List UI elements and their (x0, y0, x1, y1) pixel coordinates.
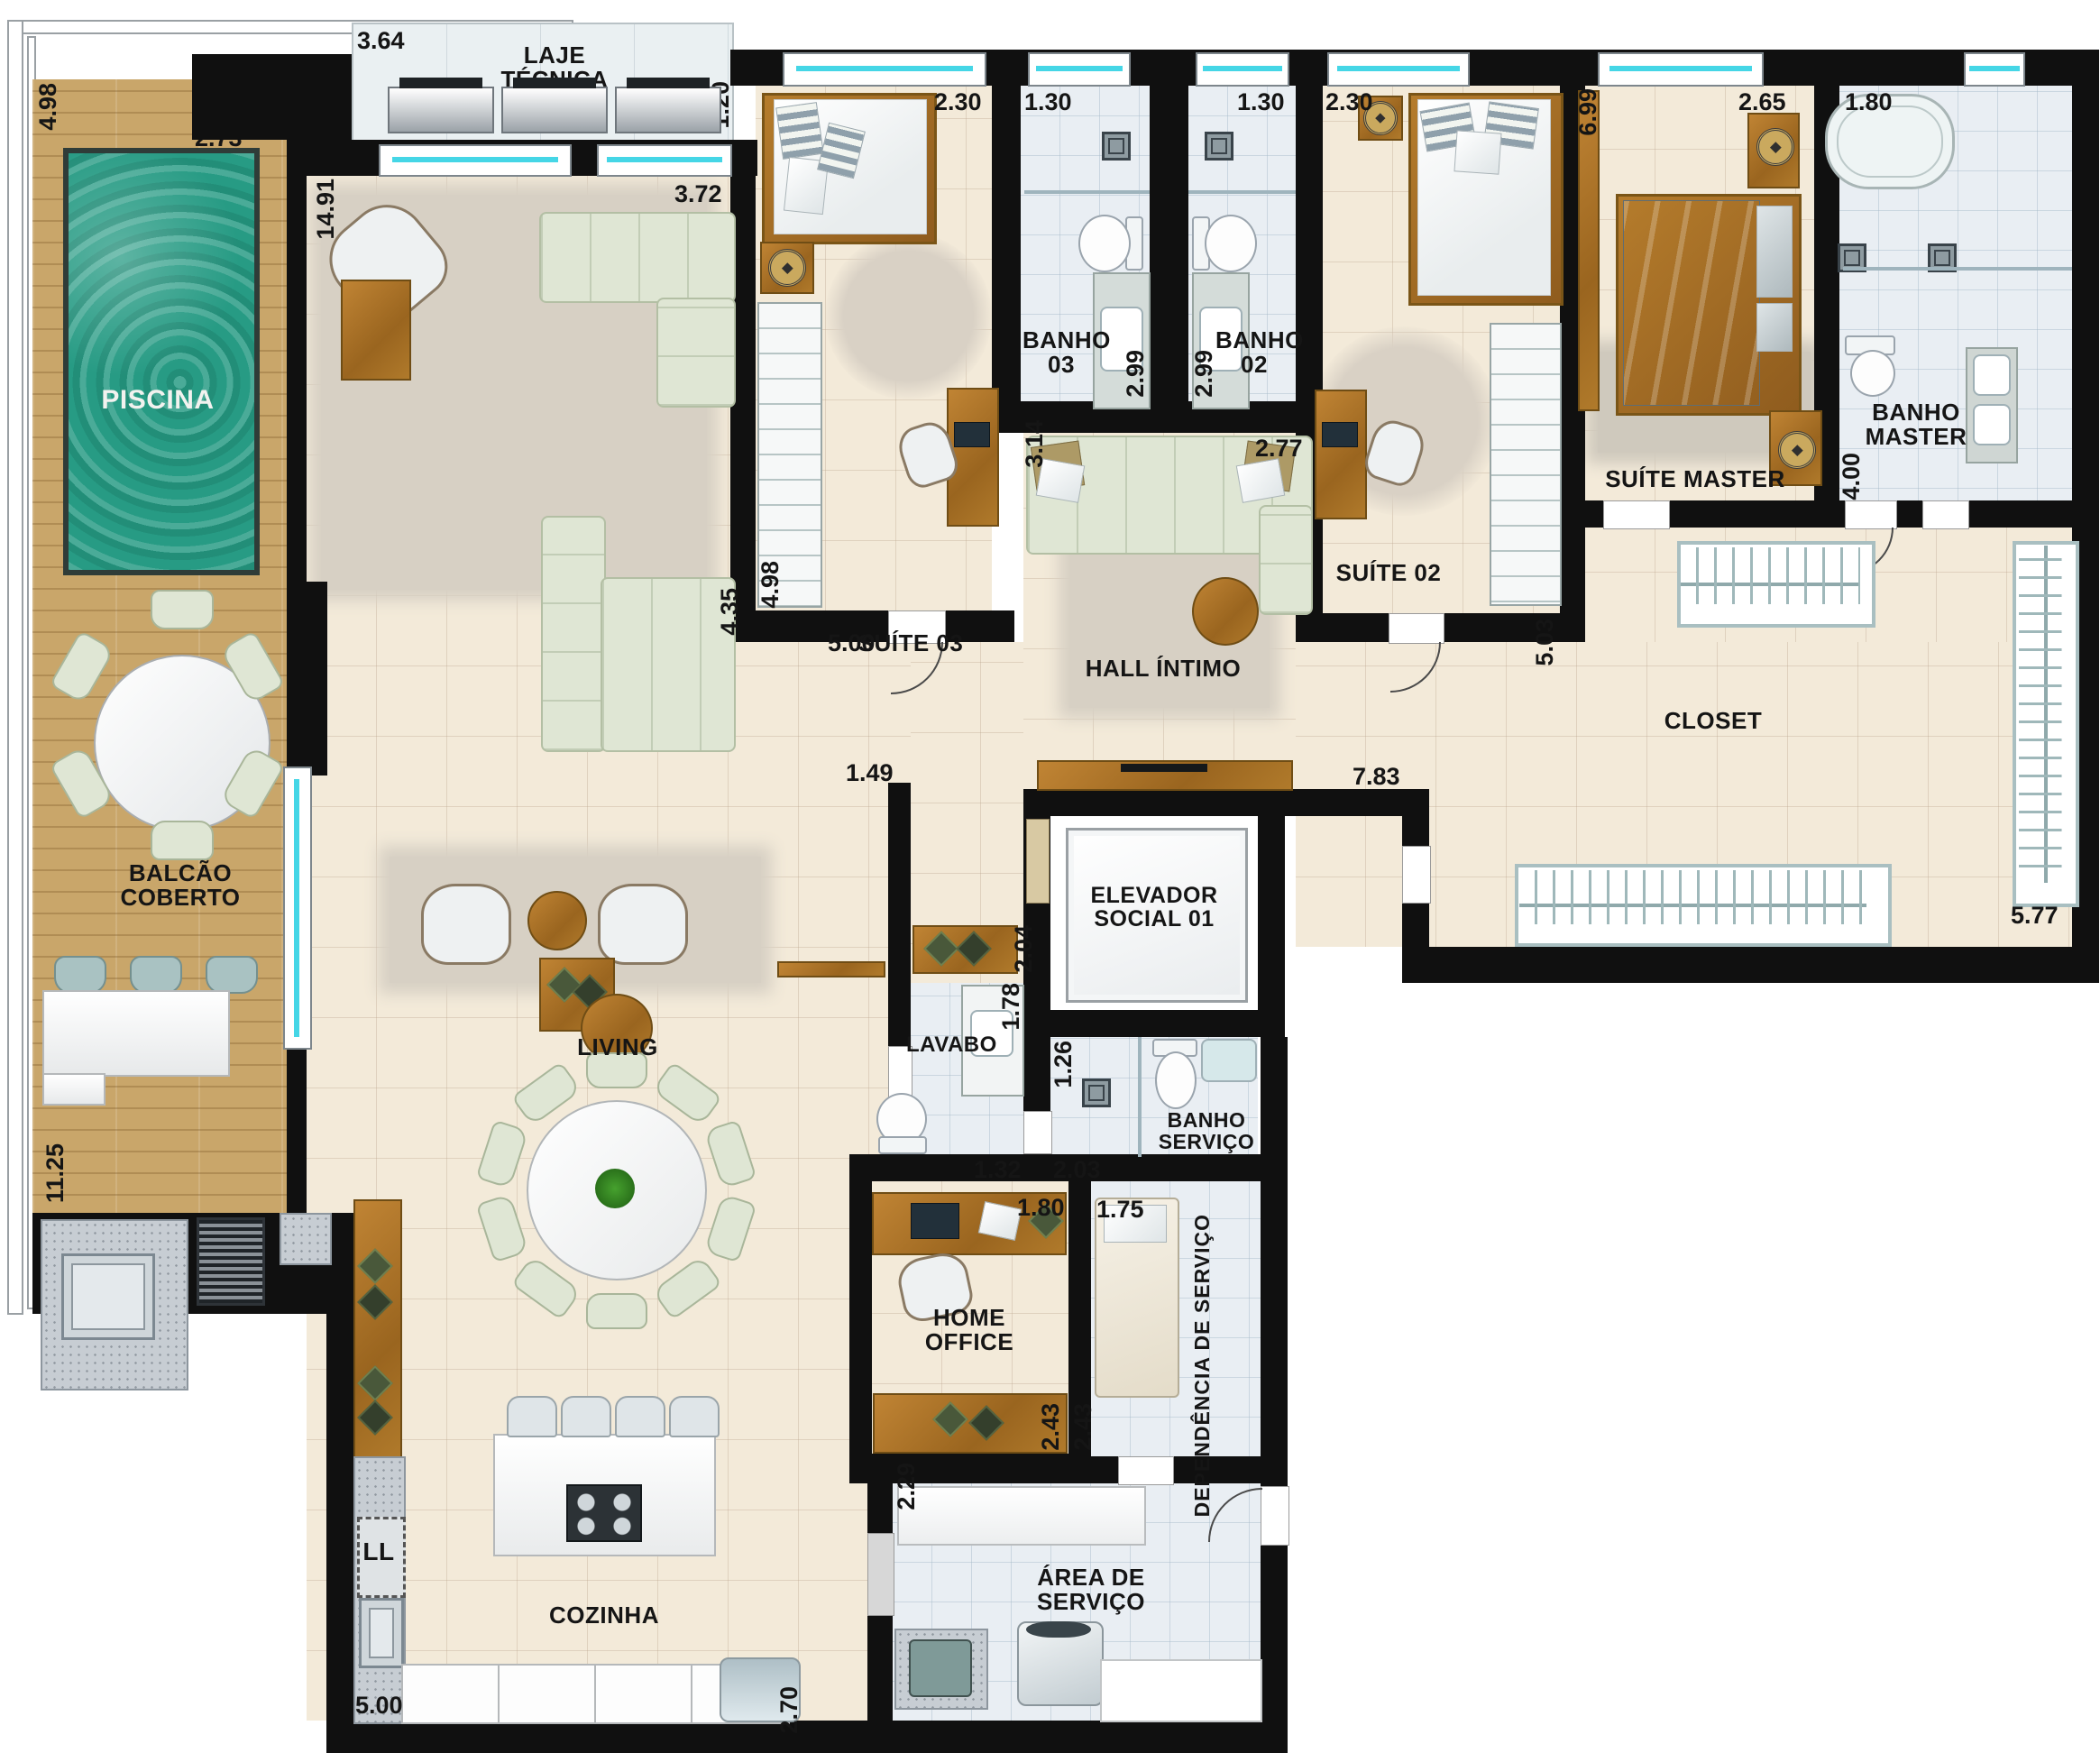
grill (197, 1217, 265, 1306)
ac-condenser (501, 87, 608, 133)
wall (1050, 1010, 1285, 1037)
dim-s02-len: 5.03 (1533, 619, 1557, 666)
kitchen-stool (615, 1396, 665, 1437)
living-sofa-upper (539, 212, 736, 303)
kitchen-stool (669, 1396, 720, 1437)
wall (1068, 1456, 1288, 1483)
closet-rack-top (1677, 541, 1875, 628)
dim-kitchen-d: 2.70 (777, 1686, 802, 1734)
dim-closet-top: 7.83 (1353, 765, 1400, 789)
suite02-label: SUÍTE 02 (1334, 561, 1443, 585)
wall (1258, 816, 1285, 1037)
banho-master-door (1845, 500, 1897, 529)
balcony-glass-door (283, 766, 312, 1050)
dining-chair (586, 1293, 647, 1329)
balcao-chair (151, 590, 214, 629)
toilet-tank (878, 1136, 927, 1154)
lamp-icon (1756, 128, 1794, 166)
shower-glass (1188, 190, 1296, 194)
shower-icon (1102, 132, 1131, 161)
wall (1150, 86, 1188, 433)
bar-counter-return (42, 1073, 105, 1106)
outdoor-counter-2 (280, 1213, 332, 1265)
floor-plan: PISCINA 4.98 2.73 BALCÃO COBERTO 11.25 L… (0, 0, 2100, 1753)
bar-stool (54, 956, 106, 994)
dim-dep-w2: 2.43 (1071, 1403, 1096, 1451)
dim-corridor: 1.49 (846, 761, 894, 785)
pillow (1756, 206, 1793, 298)
outdoor-sink (61, 1253, 155, 1340)
closet-label: CLOSET (1659, 709, 1767, 733)
dim-bs-w: 2.03 (1053, 1158, 1101, 1182)
wall (192, 54, 352, 140)
suite02-door (1389, 613, 1444, 644)
banho03-window (1028, 52, 1131, 87)
wall (287, 582, 327, 776)
hall-side-table (1192, 577, 1259, 646)
wall (1402, 947, 2099, 983)
lavabo-label: LAVABO (906, 1033, 996, 1056)
suite-master-closet-opening (1603, 500, 1670, 529)
banho02-label: BANHO 02 (1215, 328, 1293, 378)
lamp-icon (768, 249, 806, 287)
toilet-icon (1850, 350, 1895, 397)
hall-intimo-label: HALL ÍNTIMO (1082, 656, 1244, 681)
pillow (1236, 458, 1286, 503)
living-side-table-round (527, 891, 587, 950)
wall (992, 86, 1021, 433)
dim-hall-d: 3.14 (1022, 420, 1047, 468)
wall (1261, 1037, 1288, 1721)
tank-basin (909, 1639, 972, 1697)
banho03-label: BANHO 03 (1022, 328, 1100, 378)
suite-master-window (1598, 52, 1764, 87)
dim-ho-w: 2.43 (1039, 1403, 1063, 1451)
dependencia-door (1118, 1456, 1174, 1485)
terrace-railing-left (7, 20, 23, 1315)
dishwasher-label: LL (359, 1538, 399, 1565)
tv-icon (1121, 764, 1207, 772)
dim-sm-len: 6.99 (1576, 88, 1600, 136)
banho02-window (1196, 52, 1289, 87)
wall-sink-icon (1201, 1039, 1257, 1082)
bar-stool (130, 956, 182, 994)
dim-b02-len: 2.99 (1192, 350, 1216, 398)
dim-b02-w: 1.30 (1237, 90, 1285, 115)
dim-kitchen-w: 5.00 (355, 1693, 403, 1718)
closet-door2 (1922, 500, 1969, 529)
dim-lavabo-len: 1.78 (999, 983, 1023, 1031)
dim-hall-sofa: 2.77 (1255, 436, 1303, 461)
living-window-1 (379, 144, 572, 177)
dim-lavabo-w: 1.32 (974, 1158, 1022, 1182)
toilet-icon (1205, 215, 1257, 272)
shower-glass (1138, 1037, 1142, 1157)
hall-sofa-chaise (1259, 505, 1313, 615)
banho-servico-door (1023, 1111, 1052, 1154)
dim-s03-bed: 2.30 (934, 90, 982, 115)
dim-sm-w: 2.65 (1738, 90, 1786, 115)
closet-hall-door (1402, 846, 1431, 904)
dim-ho-desk: 1.80 (1017, 1196, 1065, 1220)
area-servico-exit-door (1261, 1486, 1289, 1546)
banho-master-window (1964, 52, 2025, 87)
dim-bs-shower: 1.26 (1051, 1041, 1076, 1088)
shower-glass (1843, 267, 2072, 271)
shower-icon (1205, 132, 1233, 161)
pillow (1453, 130, 1501, 174)
kitchen-stool (561, 1396, 611, 1437)
living-sofa-chaise (541, 516, 606, 752)
suite02-desk (1315, 390, 1367, 519)
area-servico-label: ÁREA DE SERVIÇO (987, 1565, 1195, 1615)
elevator-label: ELEVADOR SOCIAL 01 (1080, 884, 1228, 932)
cooktop (566, 1484, 642, 1542)
laptop-icon (1322, 422, 1358, 447)
sink-icon (1973, 404, 2011, 445)
dim-living-d: 4.35 (718, 588, 742, 636)
suite-master-wardrobe (1578, 90, 1600, 411)
cozinha-label: COZINHA (541, 1603, 667, 1628)
laptop-icon (954, 422, 990, 447)
pillow (1756, 303, 1793, 352)
suite-master-label: SUÍTE MASTER (1605, 467, 1785, 491)
wall (849, 1454, 1068, 1483)
dim-b03-w: 1.30 (1024, 90, 1072, 115)
area-servico-counter (897, 1486, 1146, 1546)
corridor-shelf (777, 961, 885, 977)
dependencia-label: DEPENDÊNCIA DE SERVIÇO (1192, 1214, 1213, 1517)
kitchen-stool (507, 1396, 557, 1437)
wall (1023, 789, 1429, 816)
sm-duvet (1623, 200, 1760, 406)
entry-door-leaf (1026, 819, 1050, 904)
dim-area-w: 2.29 (894, 1463, 919, 1510)
dim-living-len: 14.91 (314, 179, 338, 240)
lamp-icon (1778, 431, 1816, 469)
dim-bm-w: 1.80 (1845, 90, 1893, 115)
pool (63, 148, 260, 575)
dim-balcao: 11.25 (43, 1143, 68, 1203)
toilet-icon (1155, 1051, 1197, 1109)
closet-rack-bottom (1515, 864, 1892, 947)
bar-counter (42, 990, 230, 1077)
shower-glass (1024, 190, 1150, 194)
living-coffee-table (341, 280, 411, 381)
bar-stool (206, 956, 258, 994)
kitchen-service-door (867, 1533, 894, 1616)
balcao-label: BALCÃO COBERTO (117, 861, 243, 911)
kitchen-left-sink (359, 1598, 404, 1668)
area-servico-cabinet (1100, 1659, 1262, 1722)
dim-laje-w: 3.64 (357, 29, 405, 53)
shower-icon (1082, 1078, 1111, 1107)
suite02-window (1327, 52, 1470, 87)
ac-condenser (615, 87, 721, 133)
washer-lid (1026, 1621, 1091, 1638)
suite03-rug (825, 233, 992, 399)
wall (849, 1181, 872, 1454)
toilet-icon (1078, 215, 1131, 272)
dim-pool-depth: 4.98 (36, 83, 60, 131)
pillow (775, 102, 824, 160)
pool-label: PISCINA (95, 386, 221, 415)
dim-hall-social: 2.04 (1012, 925, 1036, 973)
closet-rack-right (2013, 541, 2079, 907)
living-armchair-2 (421, 884, 511, 965)
dim-dep-w: 1.75 (1096, 1198, 1144, 1222)
dim-closet-bottom: 5.77 (2011, 904, 2059, 928)
wall (326, 1213, 353, 1753)
living-armchair-3 (598, 884, 688, 965)
dim-s03-len: 4.98 (758, 561, 783, 609)
ac-condenser (388, 87, 494, 133)
suite03-window (783, 52, 986, 87)
home-office-label: HOME OFFICE (902, 1306, 1037, 1355)
dim-bm-len: 4.00 (1839, 453, 1864, 500)
laptop-icon (911, 1203, 959, 1239)
sink-icon (1973, 354, 2011, 396)
balcao-chair (151, 821, 214, 860)
suite02-wardrobe (1490, 323, 1562, 606)
dim-s02-bed: 2.30 (1325, 90, 1373, 115)
dining-centerpiece-plant (595, 1169, 635, 1208)
living-window-2 (597, 144, 732, 177)
banho-servico-label: BANHO SERVIÇO (1156, 1109, 1257, 1152)
dim-living-w: 3.72 (674, 182, 722, 207)
dim-s03-w: 5.00 (828, 631, 876, 656)
dim-b03-len: 2.99 (1123, 350, 1148, 398)
banho-master-label: BANHO MASTER (1857, 400, 1975, 450)
wall (326, 1721, 1288, 1753)
living-sofa-upper-arm (656, 298, 736, 408)
living-label: LIVING (564, 1035, 672, 1060)
